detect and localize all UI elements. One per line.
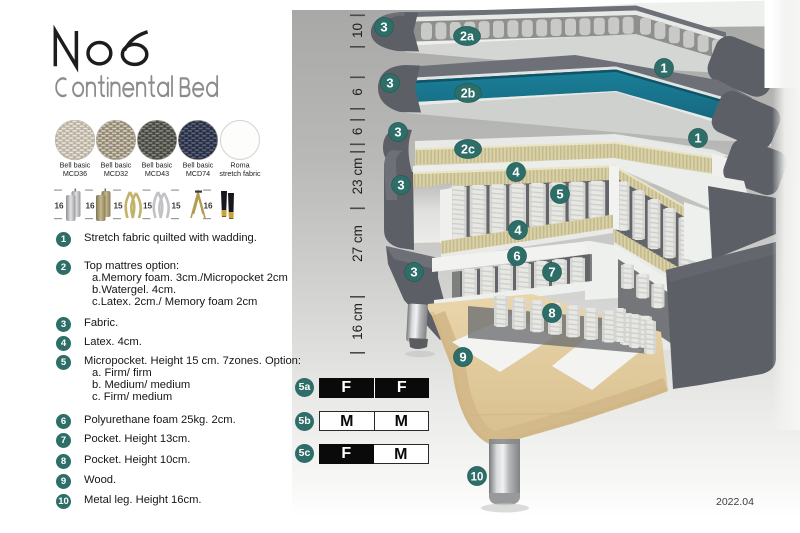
svg-text:6: 6 <box>350 88 365 96</box>
svg-text:3: 3 <box>394 125 401 140</box>
svg-text:9: 9 <box>459 350 466 365</box>
svg-text:15: 15 <box>113 202 123 211</box>
svg-text:3: 3 <box>380 20 387 35</box>
svg-text:2b: 2b <box>461 86 476 100</box>
svg-text:MCD36: MCD36 <box>63 169 87 178</box>
svg-text:6: 6 <box>513 249 520 264</box>
svg-text:4: 4 <box>512 165 520 180</box>
svg-text:16: 16 <box>54 202 64 211</box>
svg-text:stretch fabric: stretch fabric <box>219 169 261 178</box>
svg-text:16: 16 <box>203 202 213 211</box>
svg-text:2a: 2a <box>460 29 475 43</box>
svg-text:7: 7 <box>548 265 555 280</box>
svg-text:MCD32: MCD32 <box>104 169 128 178</box>
svg-text:23 cm: 23 cm <box>350 158 365 195</box>
svg-text:1: 1 <box>694 131 701 146</box>
svg-text:8: 8 <box>548 306 555 321</box>
svg-text:MCD74: MCD74 <box>186 169 210 178</box>
svg-text:4: 4 <box>514 223 522 238</box>
svg-text:16 cm: 16 cm <box>350 303 365 340</box>
svg-text:3: 3 <box>410 265 417 280</box>
svg-text:MCD43: MCD43 <box>145 169 169 178</box>
svg-text:15: 15 <box>171 202 181 211</box>
svg-text:10: 10 <box>350 23 365 38</box>
svg-text:6: 6 <box>350 128 365 136</box>
svg-text:2c: 2c <box>461 142 475 156</box>
svg-text:16: 16 <box>85 202 95 211</box>
svg-text:5: 5 <box>556 187 563 202</box>
svg-text:3: 3 <box>397 178 404 193</box>
svg-text:1: 1 <box>660 61 667 76</box>
svg-text:15: 15 <box>143 202 153 211</box>
svg-text:27 cm: 27 cm <box>350 225 365 262</box>
svg-text:10: 10 <box>471 472 484 484</box>
svg-text:3: 3 <box>386 76 393 91</box>
